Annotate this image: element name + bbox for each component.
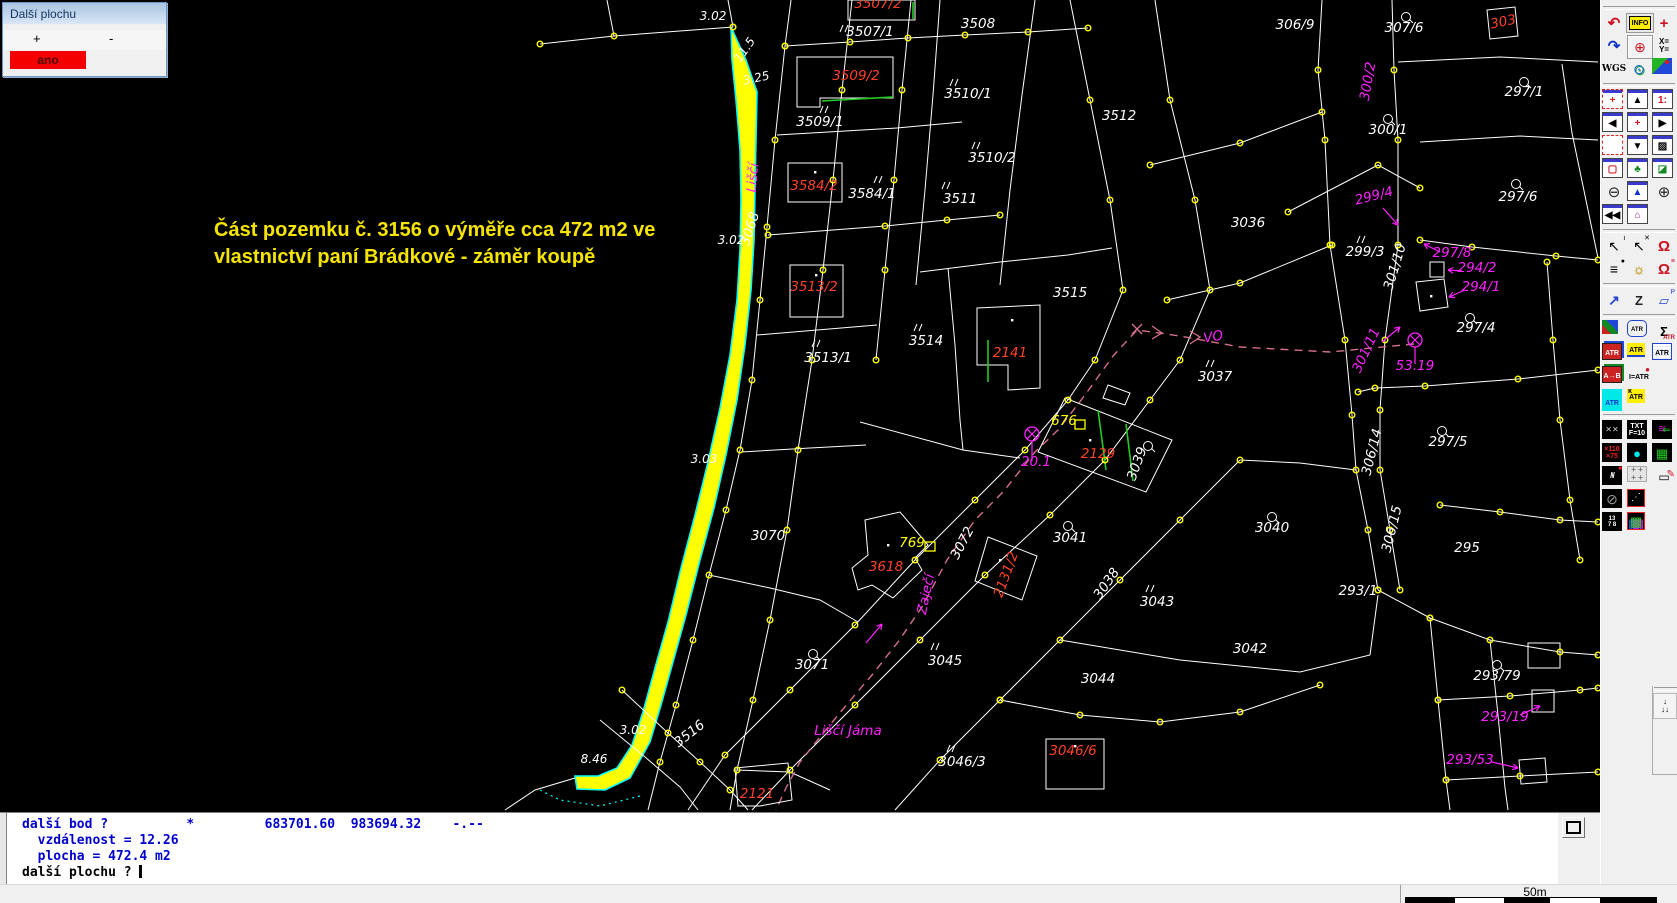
map-canvas[interactable]: 3507/135083509/13510/135123510/235113584… bbox=[0, 0, 1600, 812]
cyan-area-button[interactable]: ● bbox=[1627, 443, 1647, 462]
parcel-label: 306/9 bbox=[1276, 17, 1315, 33]
parcel-label: 3509/1 bbox=[796, 114, 844, 130]
parcel-label: 3618 bbox=[869, 559, 903, 575]
toolbar-separator bbox=[1603, 229, 1675, 233]
scale-segment bbox=[1504, 898, 1550, 903]
annotation-line2: vlastnictví paní Brádkové - záměr koupě bbox=[214, 244, 655, 271]
scale-segment bbox=[1406, 898, 1455, 903]
scale-segment bbox=[1600, 898, 1656, 903]
doc-dashed-button[interactable]: ⋰ bbox=[1627, 489, 1645, 507]
parcel-label: 2121 bbox=[740, 786, 774, 802]
parcel-label: 3070 bbox=[751, 528, 785, 544]
measure-area-button-badge: P bbox=[1670, 289, 1675, 296]
pan-left-button[interactable]: ◀ bbox=[1602, 112, 1623, 132]
parcel-label: 297/6 bbox=[1499, 189, 1538, 205]
parcel-label: 3.02 bbox=[700, 9, 727, 23]
target-point-button[interactable]: ⊕ bbox=[1627, 35, 1653, 59]
parcel-label: 3043 bbox=[1140, 594, 1174, 610]
load-down-button[interactable]: ↓ ↓↓ bbox=[1653, 693, 1677, 719]
command-panel-gutter[interactable] bbox=[0, 813, 7, 885]
parcel-label: 20.1 bbox=[1021, 454, 1051, 470]
parcel-label: 3509/2 bbox=[832, 68, 880, 84]
lasso-info-button-badge: ≡ bbox=[1671, 258, 1675, 265]
dialog-body: + - ano bbox=[3, 24, 166, 75]
atr-sum-button-badge: ATR bbox=[1663, 335, 1675, 341]
scale-1to-button[interactable]: 1: bbox=[1652, 89, 1673, 109]
parcel-label: Liščí bbox=[744, 160, 763, 193]
parcel-label: 297/8 bbox=[1433, 245, 1472, 261]
command-line: další plochu ? bbox=[22, 865, 484, 881]
parcel-label: 3.03 bbox=[691, 452, 718, 466]
parcel-label: 3508 bbox=[961, 16, 995, 32]
atr-arrows-button[interactable] bbox=[1602, 320, 1618, 334]
circle-tool-button[interactable]: ⊘ bbox=[1602, 489, 1622, 508]
atr-line-button[interactable]: ATR bbox=[1627, 343, 1645, 357]
atr-sum-button[interactable]: ΣATR bbox=[1652, 320, 1676, 342]
color-lines-button-badge: ⇐ bbox=[1663, 426, 1671, 436]
tree-view-button[interactable]: ♣ bbox=[1627, 158, 1648, 178]
blink-window-button[interactable] bbox=[1602, 135, 1623, 155]
prev-view-button[interactable]: ▲ bbox=[1627, 181, 1648, 201]
text-size-button[interactable]: TXT F=10 bbox=[1627, 420, 1647, 439]
map-pin-button[interactable] bbox=[1652, 58, 1672, 74]
zoom-window-button[interactable]: + bbox=[1602, 89, 1623, 109]
home-view-button[interactable]: ⌂ bbox=[1627, 204, 1648, 224]
parcel-label: 3071 bbox=[795, 657, 829, 673]
identify-cursor-button[interactable]: ↖i bbox=[1602, 235, 1626, 257]
plus-button[interactable]: + bbox=[33, 31, 41, 46]
command-lines[interactable]: další bod ? * 683701.60 983694.32 -.-- v… bbox=[22, 817, 484, 881]
parcel-label: 297/4 bbox=[1457, 320, 1496, 336]
parcel-label: 3036 bbox=[1231, 215, 1265, 231]
parcel-label: 3.02 bbox=[718, 233, 745, 247]
atr-wrench-button[interactable]: ATR bbox=[1602, 389, 1622, 411]
command-line: plocha = 472.4 m2 bbox=[22, 849, 484, 865]
parcel-label: 3515 bbox=[1053, 285, 1087, 301]
parcel-label: 3507/2 bbox=[854, 0, 902, 12]
undo-button[interactable]: ↶ bbox=[1602, 12, 1626, 34]
parcel-label: 3513/2 bbox=[790, 279, 838, 295]
atr-k-button[interactable]: ATRk bbox=[1627, 389, 1645, 403]
parcel-label: Liščí Jáma bbox=[814, 723, 881, 739]
parcel-label: 3510/2 bbox=[968, 150, 1016, 166]
toolbar-separator bbox=[1603, 6, 1675, 10]
flashlight-button[interactable]: ☼ bbox=[1627, 258, 1651, 280]
deselect-cursor-button-badge: ✕ bbox=[1644, 235, 1650, 242]
back-view-button[interactable]: ◀◀ bbox=[1602, 204, 1623, 224]
pan-up-button[interactable]: ▲ bbox=[1627, 89, 1648, 109]
point-numbers-button[interactable]: 13 7 8 bbox=[1602, 512, 1622, 531]
parcel-label: 676 bbox=[1051, 413, 1077, 429]
dialog-title: Další plochu bbox=[3, 3, 166, 24]
ano-button[interactable]: ano bbox=[10, 51, 86, 69]
pan-down-button[interactable]: ▼ bbox=[1627, 135, 1648, 155]
zoom-out-button[interactable]: ⊖ bbox=[1602, 181, 1626, 203]
toolbar-separator bbox=[1603, 314, 1675, 318]
annotation-line1: Část pozemku č. 3156 o výměře cca 472 m2… bbox=[214, 217, 655, 244]
identify-cursor-button-badge: i bbox=[1623, 235, 1625, 242]
building-center-mark bbox=[1089, 439, 1091, 441]
parcel-label: 3513/1 bbox=[804, 350, 852, 366]
parcel-label: 293/79 bbox=[1473, 668, 1521, 684]
application-window: 3507/135083509/13510/135123510/235113584… bbox=[0, 0, 1677, 903]
parcel-label: 3514 bbox=[909, 333, 943, 349]
toolbar-separator bbox=[1603, 283, 1675, 287]
map-annotation: Část pozemku č. 3156 o výměře cca 472 m2… bbox=[214, 217, 655, 271]
parcel-label: 3040 bbox=[1255, 520, 1289, 536]
cadastral-map: 3507/135083509/13510/135123510/235113584… bbox=[0, 0, 1600, 812]
parcel-label: 3046/6 bbox=[1049, 743, 1097, 759]
building-center-mark bbox=[815, 274, 817, 276]
parcel-label: 3512 bbox=[1102, 108, 1136, 124]
parcel-label: 3042 bbox=[1233, 641, 1267, 657]
atr-identity-button-badge: ● bbox=[1645, 366, 1650, 374]
parcel-label: 3510/1 bbox=[944, 86, 992, 102]
line-points-button[interactable]: /\/■ bbox=[1602, 466, 1622, 485]
parcel-label: 295 bbox=[1454, 540, 1480, 556]
plus-grid-button[interactable]: + + + + bbox=[1627, 466, 1647, 482]
scale-110-75-button[interactable]: ×110 ×75 bbox=[1602, 443, 1622, 462]
status-bar: 50m bbox=[0, 884, 1677, 903]
pointer-arrowhead bbox=[1449, 297, 1455, 298]
restore-window-button[interactable] bbox=[1562, 817, 1585, 838]
toolbar-separator bbox=[1603, 414, 1675, 418]
building-center-mark bbox=[999, 559, 1001, 561]
parcel-label: 8.46 bbox=[581, 752, 608, 766]
point-info-button[interactable]: ≡● bbox=[1602, 258, 1626, 280]
parcel-label: 2129 bbox=[1081, 446, 1115, 462]
atr-table-button[interactable]: ATR bbox=[1652, 343, 1672, 360]
toolbar-separator bbox=[1603, 83, 1675, 87]
parcel-label: 3046/3 bbox=[938, 754, 986, 770]
status-divider bbox=[1400, 885, 1401, 903]
building-center-mark bbox=[1430, 295, 1432, 297]
toolbar-separator bbox=[1654, 687, 1677, 691]
command-line: další bod ? * 683701.60 983694.32 -.-- bbox=[22, 817, 484, 833]
parcel-label: 3044 bbox=[1081, 671, 1115, 687]
monitor-edit-button-badge: ✎ bbox=[1667, 470, 1675, 480]
minus-button[interactable]: - bbox=[109, 31, 113, 46]
parcel-label: 3037 bbox=[1198, 369, 1233, 385]
building-center-mark bbox=[1011, 319, 1013, 321]
command-line: vzdálenost = 12.26 bbox=[22, 833, 484, 849]
parcel-label: 2141 bbox=[993, 345, 1027, 361]
globe-compass-button[interactable]: ⊙ bbox=[1627, 58, 1651, 80]
redo-button[interactable]: ↷ bbox=[1602, 35, 1626, 57]
command-panel-right-strip bbox=[1558, 813, 1600, 885]
center-point-button[interactable]: + bbox=[1627, 112, 1648, 132]
line-points-button-badge: ■ bbox=[1618, 466, 1621, 472]
measure-polyline-button[interactable]: Z bbox=[1627, 289, 1651, 311]
doc-mosaic-button[interactable]: ▩ bbox=[1627, 512, 1645, 530]
parcel-label: 3584/2 bbox=[790, 178, 838, 194]
parcel-label: 53.19 bbox=[1396, 358, 1435, 374]
atr-identity-button[interactable]: I=ATR● bbox=[1627, 366, 1651, 388]
text-cursor bbox=[139, 865, 142, 878]
deselect-cursor-button[interactable]: ↖✕ bbox=[1627, 235, 1651, 257]
point-info-button-badge: ● bbox=[1621, 258, 1625, 265]
repaint-button[interactable]: ◪ bbox=[1652, 158, 1673, 178]
parcel-label: 3041 bbox=[1053, 530, 1087, 546]
wgs-button[interactable]: WGS bbox=[1602, 58, 1626, 80]
parcel-label: 769 bbox=[899, 535, 925, 551]
parcel-label: 297/1 bbox=[1505, 84, 1544, 100]
zoom-in-button[interactable]: ⊕ bbox=[1652, 181, 1676, 203]
parcel-label: 294/1 bbox=[1462, 279, 1501, 295]
building-center-mark bbox=[887, 544, 889, 546]
atr-layers-button[interactable]: ATR bbox=[1602, 343, 1622, 360]
crosshair-icon[interactable]: + bbox=[1652, 12, 1676, 34]
atr-k-button-badge: k bbox=[1628, 389, 1632, 395]
parcel-label: 297/5 bbox=[1429, 434, 1468, 450]
parcel-label: 293/1 bbox=[1339, 583, 1378, 599]
redraw-button[interactable]: ▨ bbox=[1652, 135, 1673, 155]
pan-right-button[interactable]: ▶ bbox=[1652, 112, 1673, 132]
parcel-label: 3584/1 bbox=[848, 186, 896, 202]
new-view-button[interactable]: ▢ bbox=[1602, 158, 1623, 178]
dalsi-plochu-dialog: Další plochu + - ano bbox=[2, 2, 167, 77]
scale-bar bbox=[1405, 897, 1657, 903]
parcel-label: 300/1 bbox=[1369, 122, 1408, 138]
dialog-options-row: + - bbox=[3, 30, 166, 50]
parcel-label: 294/2 bbox=[1458, 260, 1497, 276]
parcel-label: 293/53 bbox=[1446, 752, 1494, 768]
parcel-label: 3.02 bbox=[620, 723, 647, 737]
color-lines-button[interactable]: ≋⇐ bbox=[1652, 420, 1672, 439]
parcel-label: 299/3 bbox=[1346, 244, 1385, 260]
command-panel: další bod ? * 683701.60 983694.32 -.-- v… bbox=[0, 812, 1600, 884]
parcel-label: 307/6 bbox=[1385, 20, 1424, 36]
building-center-mark bbox=[814, 171, 816, 173]
restore-icon bbox=[1566, 821, 1581, 834]
measure-line-button[interactable]: ↗ bbox=[1602, 289, 1626, 311]
atr-copy-ab-button[interactable]: A→B bbox=[1602, 366, 1622, 383]
monitor-edit-button[interactable]: ▭✎ bbox=[1652, 466, 1676, 488]
lasso-button[interactable]: Ω bbox=[1652, 235, 1676, 257]
parcel-label: 3511 bbox=[943, 191, 977, 207]
toolbar-mini-panel: ↓ ↓↓ bbox=[1652, 686, 1677, 775]
raster-hatch-button[interactable]: ✕✕ bbox=[1602, 420, 1622, 439]
parcel-label: 3045 bbox=[928, 653, 962, 669]
measure-area-button[interactable]: ▱P bbox=[1652, 289, 1676, 311]
parcel-label: 293/19 bbox=[1481, 709, 1529, 725]
xy-coords-button[interactable]: X= Y= bbox=[1652, 35, 1676, 57]
parcel-label: 3507/1 bbox=[846, 24, 894, 40]
info-button[interactable]: INFO bbox=[1629, 16, 1651, 30]
map-fragment-button[interactable]: ▦ bbox=[1652, 443, 1672, 462]
atr-polygon-button[interactable]: ATR bbox=[1627, 320, 1647, 337]
lasso-info-button[interactable]: Ω≡ bbox=[1652, 258, 1676, 280]
